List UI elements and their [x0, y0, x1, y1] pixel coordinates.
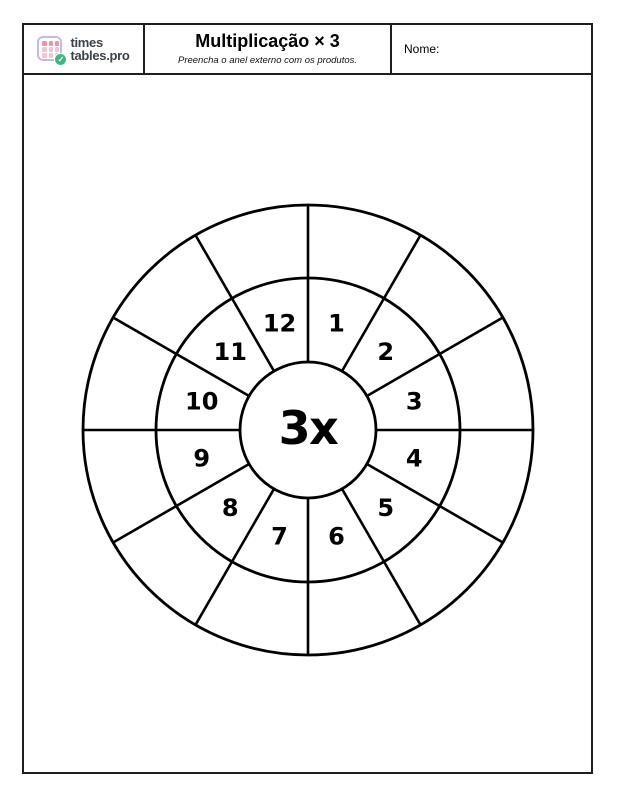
- check-badge-icon: ✓: [54, 53, 67, 66]
- wheel-center-label: 3x: [279, 401, 339, 455]
- title-cell: Multiplicação × 3 Preencha o anel extern…: [145, 25, 392, 73]
- inner-ring-number: 8: [222, 494, 239, 522]
- logo-line-1: times: [70, 36, 129, 49]
- inner-ring-number: 3: [406, 388, 423, 416]
- grid-dot: [49, 41, 54, 46]
- grid-dot: [55, 47, 60, 52]
- inner-ring-number: 9: [193, 444, 210, 472]
- name-cell: Nome:: [392, 25, 591, 73]
- logo-wordmark: times tables.pro: [70, 36, 129, 63]
- inner-ring-number: 1: [328, 310, 345, 338]
- grid-dot: [49, 47, 54, 52]
- inner-ring-number: 5: [377, 494, 394, 522]
- inner-ring-number: 4: [406, 444, 423, 472]
- name-label: Nome:: [404, 42, 439, 56]
- inner-ring-number: 7: [271, 522, 288, 550]
- inner-ring-number: 11: [214, 338, 247, 366]
- grid-dot: [49, 53, 54, 58]
- multiplication-wheel: 1234567891011123x: [78, 200, 538, 660]
- inner-ring-number: 12: [263, 310, 296, 338]
- worksheet-instructions: Preencha o anel externo com os produtos.: [178, 55, 357, 66]
- times-tables-logo-icon: ✓: [37, 36, 63, 62]
- logo-line-2: tables.pro: [70, 49, 129, 62]
- inner-ring-number: 6: [328, 522, 345, 550]
- inner-ring-number: 10: [185, 388, 218, 416]
- worksheet-page: ✓ times tables.pro Multiplicação × 3 Pre…: [0, 0, 618, 800]
- grid-dot: [42, 47, 47, 52]
- grid-dot: [42, 41, 47, 46]
- worksheet-header: ✓ times tables.pro Multiplicação × 3 Pre…: [22, 23, 593, 73]
- grid-dot: [55, 41, 60, 46]
- grid-dot: [42, 53, 47, 58]
- worksheet-title: Multiplicação × 3: [195, 32, 340, 52]
- logo-cell: ✓ times tables.pro: [24, 25, 145, 73]
- inner-ring-number: 2: [377, 338, 394, 366]
